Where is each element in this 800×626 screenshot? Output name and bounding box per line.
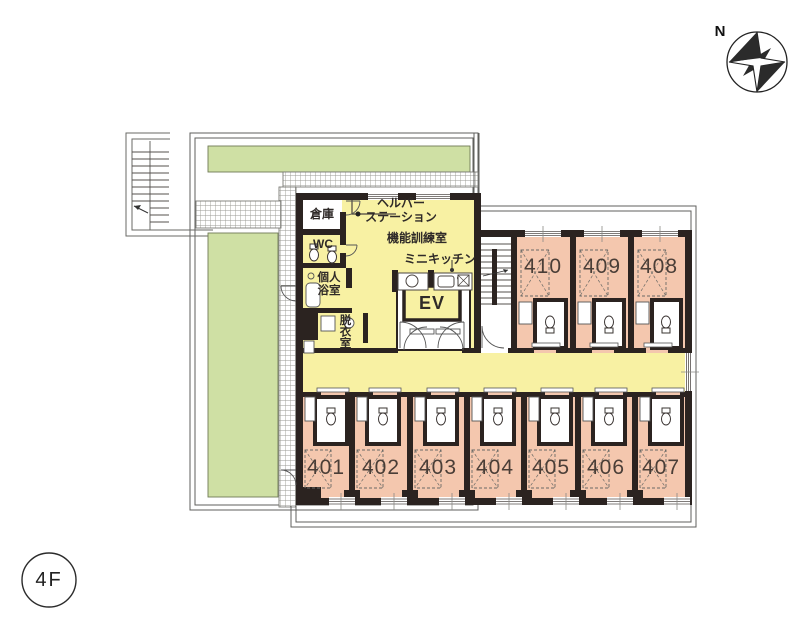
room-410-label: 410 xyxy=(513,256,573,278)
room-404-label: 404 xyxy=(465,457,525,479)
floor-badge: 4F xyxy=(23,570,75,591)
mini-kitchen-label: ミニキッチン xyxy=(380,253,500,266)
compass-n-label: N xyxy=(710,24,730,40)
training-room-label: 機能訓練室 xyxy=(357,232,477,245)
room-405-label: 405 xyxy=(521,457,581,479)
corridor-fill xyxy=(303,350,689,392)
paved-path-top xyxy=(283,172,478,187)
floor-plan-drawing xyxy=(0,0,800,626)
room-408-label: 408 xyxy=(629,256,689,278)
garden-area-left xyxy=(208,233,278,497)
room-401-label: 401 xyxy=(296,457,356,479)
garden-area-top xyxy=(208,146,470,172)
room-402-label: 402 xyxy=(351,457,411,479)
elevator-label: EV xyxy=(402,294,462,313)
floor-plan-page: N 4F 倉庫 ヘルパー ステーション 機能訓練室 WC ミニキッチン 個人 浴… xyxy=(0,0,800,626)
helper-station-label-line2: ステーション xyxy=(351,211,451,224)
wc-label: WC xyxy=(298,238,348,251)
room-403-label: 403 xyxy=(408,457,468,479)
private-bath-label-line2: 浴室 xyxy=(306,285,352,297)
room-406-label: 406 xyxy=(576,457,636,479)
storage-label: 倉庫 xyxy=(297,208,347,221)
compass-rose xyxy=(727,32,787,92)
room-407-label: 407 xyxy=(631,457,691,479)
dressing-room-label: 脱衣室 xyxy=(338,310,350,352)
helper-station-label-line1: ヘルパー xyxy=(351,197,451,210)
room-409-label: 409 xyxy=(572,256,632,278)
private-bath-label-line1: 個人 xyxy=(306,272,352,284)
paved-path-stairs xyxy=(196,201,281,228)
paved-path-west xyxy=(279,187,296,507)
